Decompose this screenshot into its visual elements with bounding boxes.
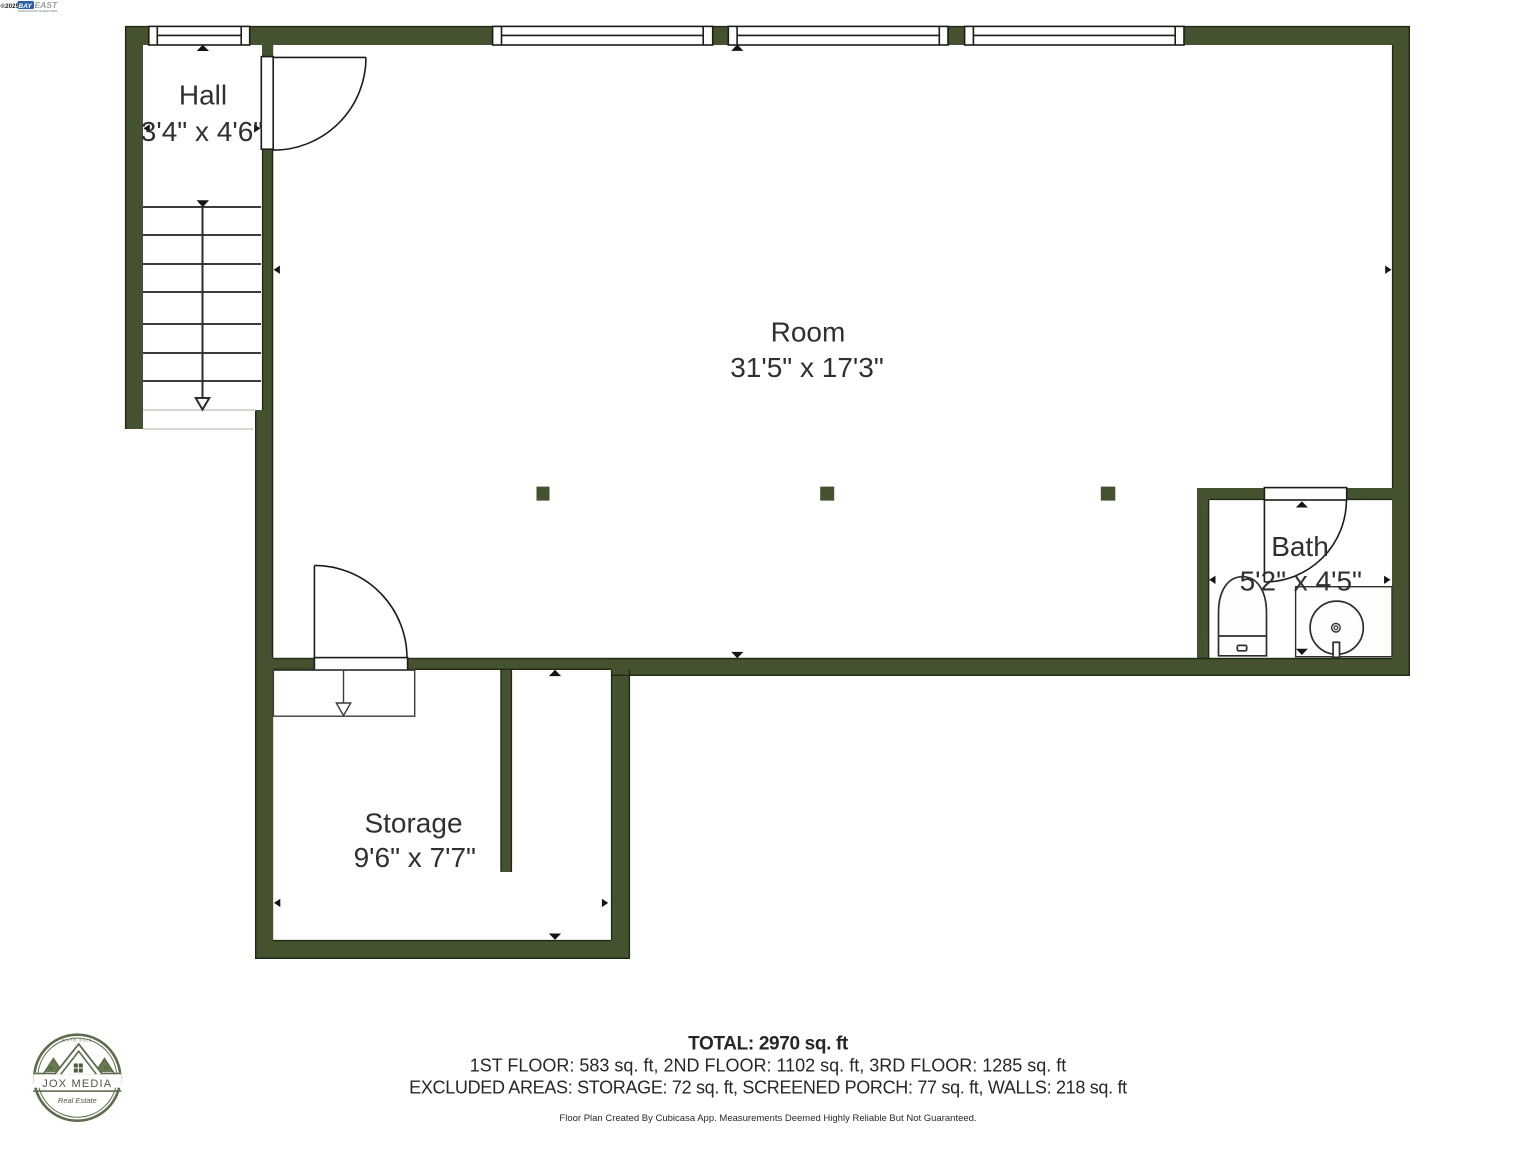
svg-text:Hall: Hall: [179, 80, 227, 111]
svg-text:ASSOCIATION OF REALTORS: ASSOCIATION OF REALTORS: [18, 9, 57, 13]
svg-text:©2025: ©2025: [1, 2, 20, 10]
svg-text:Bath: Bath: [1271, 531, 1329, 562]
svg-text:Real Estate: Real Estate: [58, 1096, 97, 1105]
svg-text:9'6" x 7'7": 9'6" x 7'7": [354, 842, 476, 873]
svg-text:5'2" x 4'5": 5'2" x 4'5": [1240, 566, 1362, 597]
svg-text:3'4" x 4'6": 3'4" x 4'6": [141, 116, 263, 147]
svg-text:TOTAL: 2970 sq. ft: TOTAL: 2970 sq. ft: [688, 1033, 849, 1054]
svg-text:1ST FLOOR: 583 sq. ft, 2ND FLO: 1ST FLOOR: 583 sq. ft, 2ND FLOOR: 1102 s…: [470, 1055, 1067, 1075]
svg-text:Floor Plan Created By Cubicasa: Floor Plan Created By Cubicasa App. Meas…: [559, 1113, 976, 1124]
svg-text:ESTD 2023: ESTD 2023: [62, 1038, 92, 1043]
svg-text:31'5" x 17'3": 31'5" x 17'3": [730, 352, 884, 383]
svg-text:EXCLUDED AREAS: STORAGE: 72 sq: EXCLUDED AREAS: STORAGE: 72 sq. ft, SCRE…: [409, 1077, 1127, 1097]
svg-text:Storage: Storage: [364, 807, 462, 838]
svg-text:JOX MEDIA: JOX MEDIA: [42, 1078, 112, 1090]
svg-text:Room: Room: [771, 317, 846, 348]
